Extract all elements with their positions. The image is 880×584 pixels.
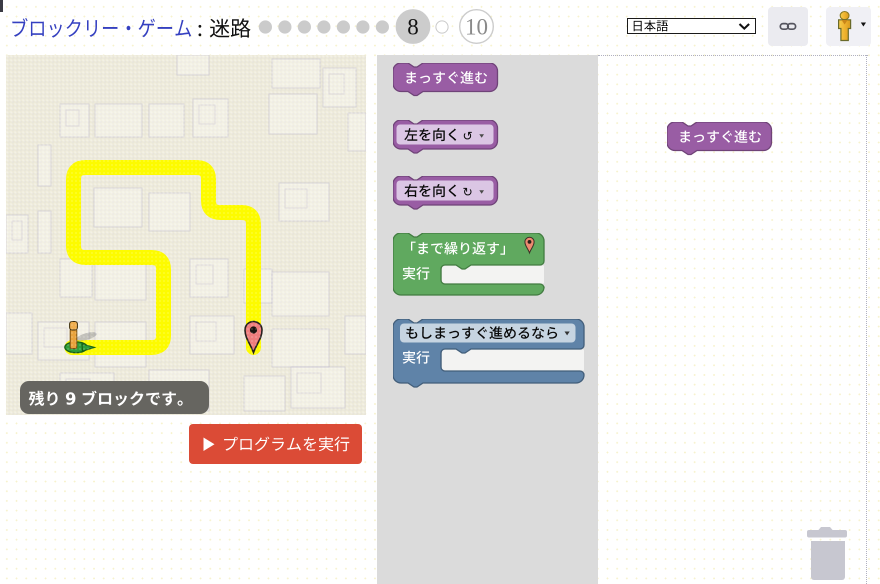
svg-text:10: 10: [465, 15, 488, 40]
svg-text:8: 8: [407, 15, 419, 40]
